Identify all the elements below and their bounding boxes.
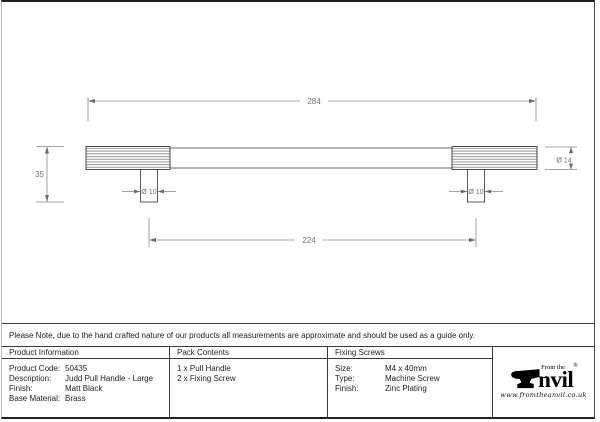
pull-handle-drawing: 284 35 Ø 10 [2, 2, 594, 324]
list-item: 1 x Pull Handle [177, 364, 327, 374]
dim-fixing-centers-label: 224 [302, 236, 316, 245]
from-the-anvil-logo: From the nvil ® www.fromtheanvil.co.uk [500, 365, 586, 399]
screw-type-label: Type: [335, 374, 385, 384]
table-row: Base Material: Brass [9, 394, 169, 404]
finish-value: Matt Black [65, 384, 102, 394]
description-label: Description: [9, 374, 65, 384]
screw-finish-value: Zinc Plating [385, 384, 427, 394]
product-information-body: Product Code: 50435 Description: Judd Pu… [2, 359, 169, 417]
screw-size-label: Size: [335, 364, 385, 374]
brand-column: From the nvil ® www.fromtheanvil.co.uk [493, 347, 594, 417]
description-value: Judd Pull Handle - Large [65, 374, 153, 384]
dim-post-diameter-left-label: Ø 10 [141, 189, 156, 196]
screw-type-value: Machine Screw [385, 374, 440, 384]
pack-contents-header: Pack Contents [170, 347, 327, 359]
dim-overall-length: 284 [88, 97, 536, 121]
finish-label: Finish: [9, 384, 65, 394]
disclaimer-note: Please Note, due to the hand crafted nat… [2, 324, 594, 347]
fixing-screws-body: Size: M4 x 40mm Type: Machine Screw Fini… [328, 359, 492, 417]
fixing-screws-header: Fixing Screws [328, 347, 492, 359]
fixing-screws-column: Fixing Screws Size: M4 x 40mm Type: Mach… [328, 347, 493, 417]
product-code-label: Product Code: [9, 364, 65, 374]
table-row: Size: M4 x 40mm [335, 364, 492, 374]
table-row: Finish: Zinc Plating [335, 384, 492, 394]
handle-middle-bar [170, 148, 452, 168]
product-code-value: 50435 [65, 364, 87, 374]
anvil-icon [509, 368, 541, 390]
table-row: Description: Judd Pull Handle - Large [9, 374, 169, 384]
handle-right-reeded-end [452, 147, 537, 170]
list-item: 2 x Fixing Screw [177, 374, 327, 384]
registered-trademark-icon: ® [573, 363, 578, 369]
dim-end-diameter: Ø 14 [545, 147, 577, 170]
right-fixing-post [468, 168, 485, 202]
dim-end-diameter-label: Ø 14 [556, 158, 571, 165]
pack-contents-body: 1 x Pull Handle 2 x Fixing Screw [170, 359, 327, 417]
logo-website: www.fromtheanvil.co.uk [500, 391, 586, 399]
product-information-column: Product Information Product Code: 50435 … [2, 347, 170, 417]
table-row: Type: Machine Screw [335, 374, 492, 384]
base-material-label: Base Material: [9, 394, 65, 404]
disclaimer-note-text: Please Note, due to the hand crafted nat… [9, 331, 475, 340]
base-material-value: Brass [65, 394, 85, 404]
dim-overall-length-label: 284 [307, 97, 321, 106]
table-row: Finish: Matt Black [9, 384, 169, 394]
dim-projection: 35 [35, 147, 64, 203]
dim-post-diameter-right-label: Ø 10 [468, 189, 483, 196]
product-information-header: Product Information [2, 347, 169, 359]
pack-contents-column: Pack Contents 1 x Pull Handle 2 x Fixing… [170, 347, 328, 417]
dim-post-diameter-right: Ø 10 [449, 189, 503, 196]
handle-left-reeded-end [86, 147, 170, 170]
spec-sheet: 284 35 Ø 10 [1, 0, 595, 419]
screw-size-value: M4 x 40mm [385, 364, 427, 374]
product-info-table: Product Information Product Code: 50435 … [2, 347, 594, 417]
screw-finish-label: Finish: [335, 384, 385, 394]
table-row: Product Code: 50435 [9, 364, 169, 374]
logo-brand-text: nvil [538, 369, 573, 391]
logo-tagline: From the [541, 364, 565, 371]
dim-fixing-centers: 224 [149, 218, 476, 247]
technical-drawing-area: 284 35 Ø 10 [2, 2, 594, 324]
dim-post-diameter-left: Ø 10 [122, 189, 176, 196]
left-fixing-post [141, 168, 158, 202]
dim-projection-label: 35 [35, 170, 44, 179]
